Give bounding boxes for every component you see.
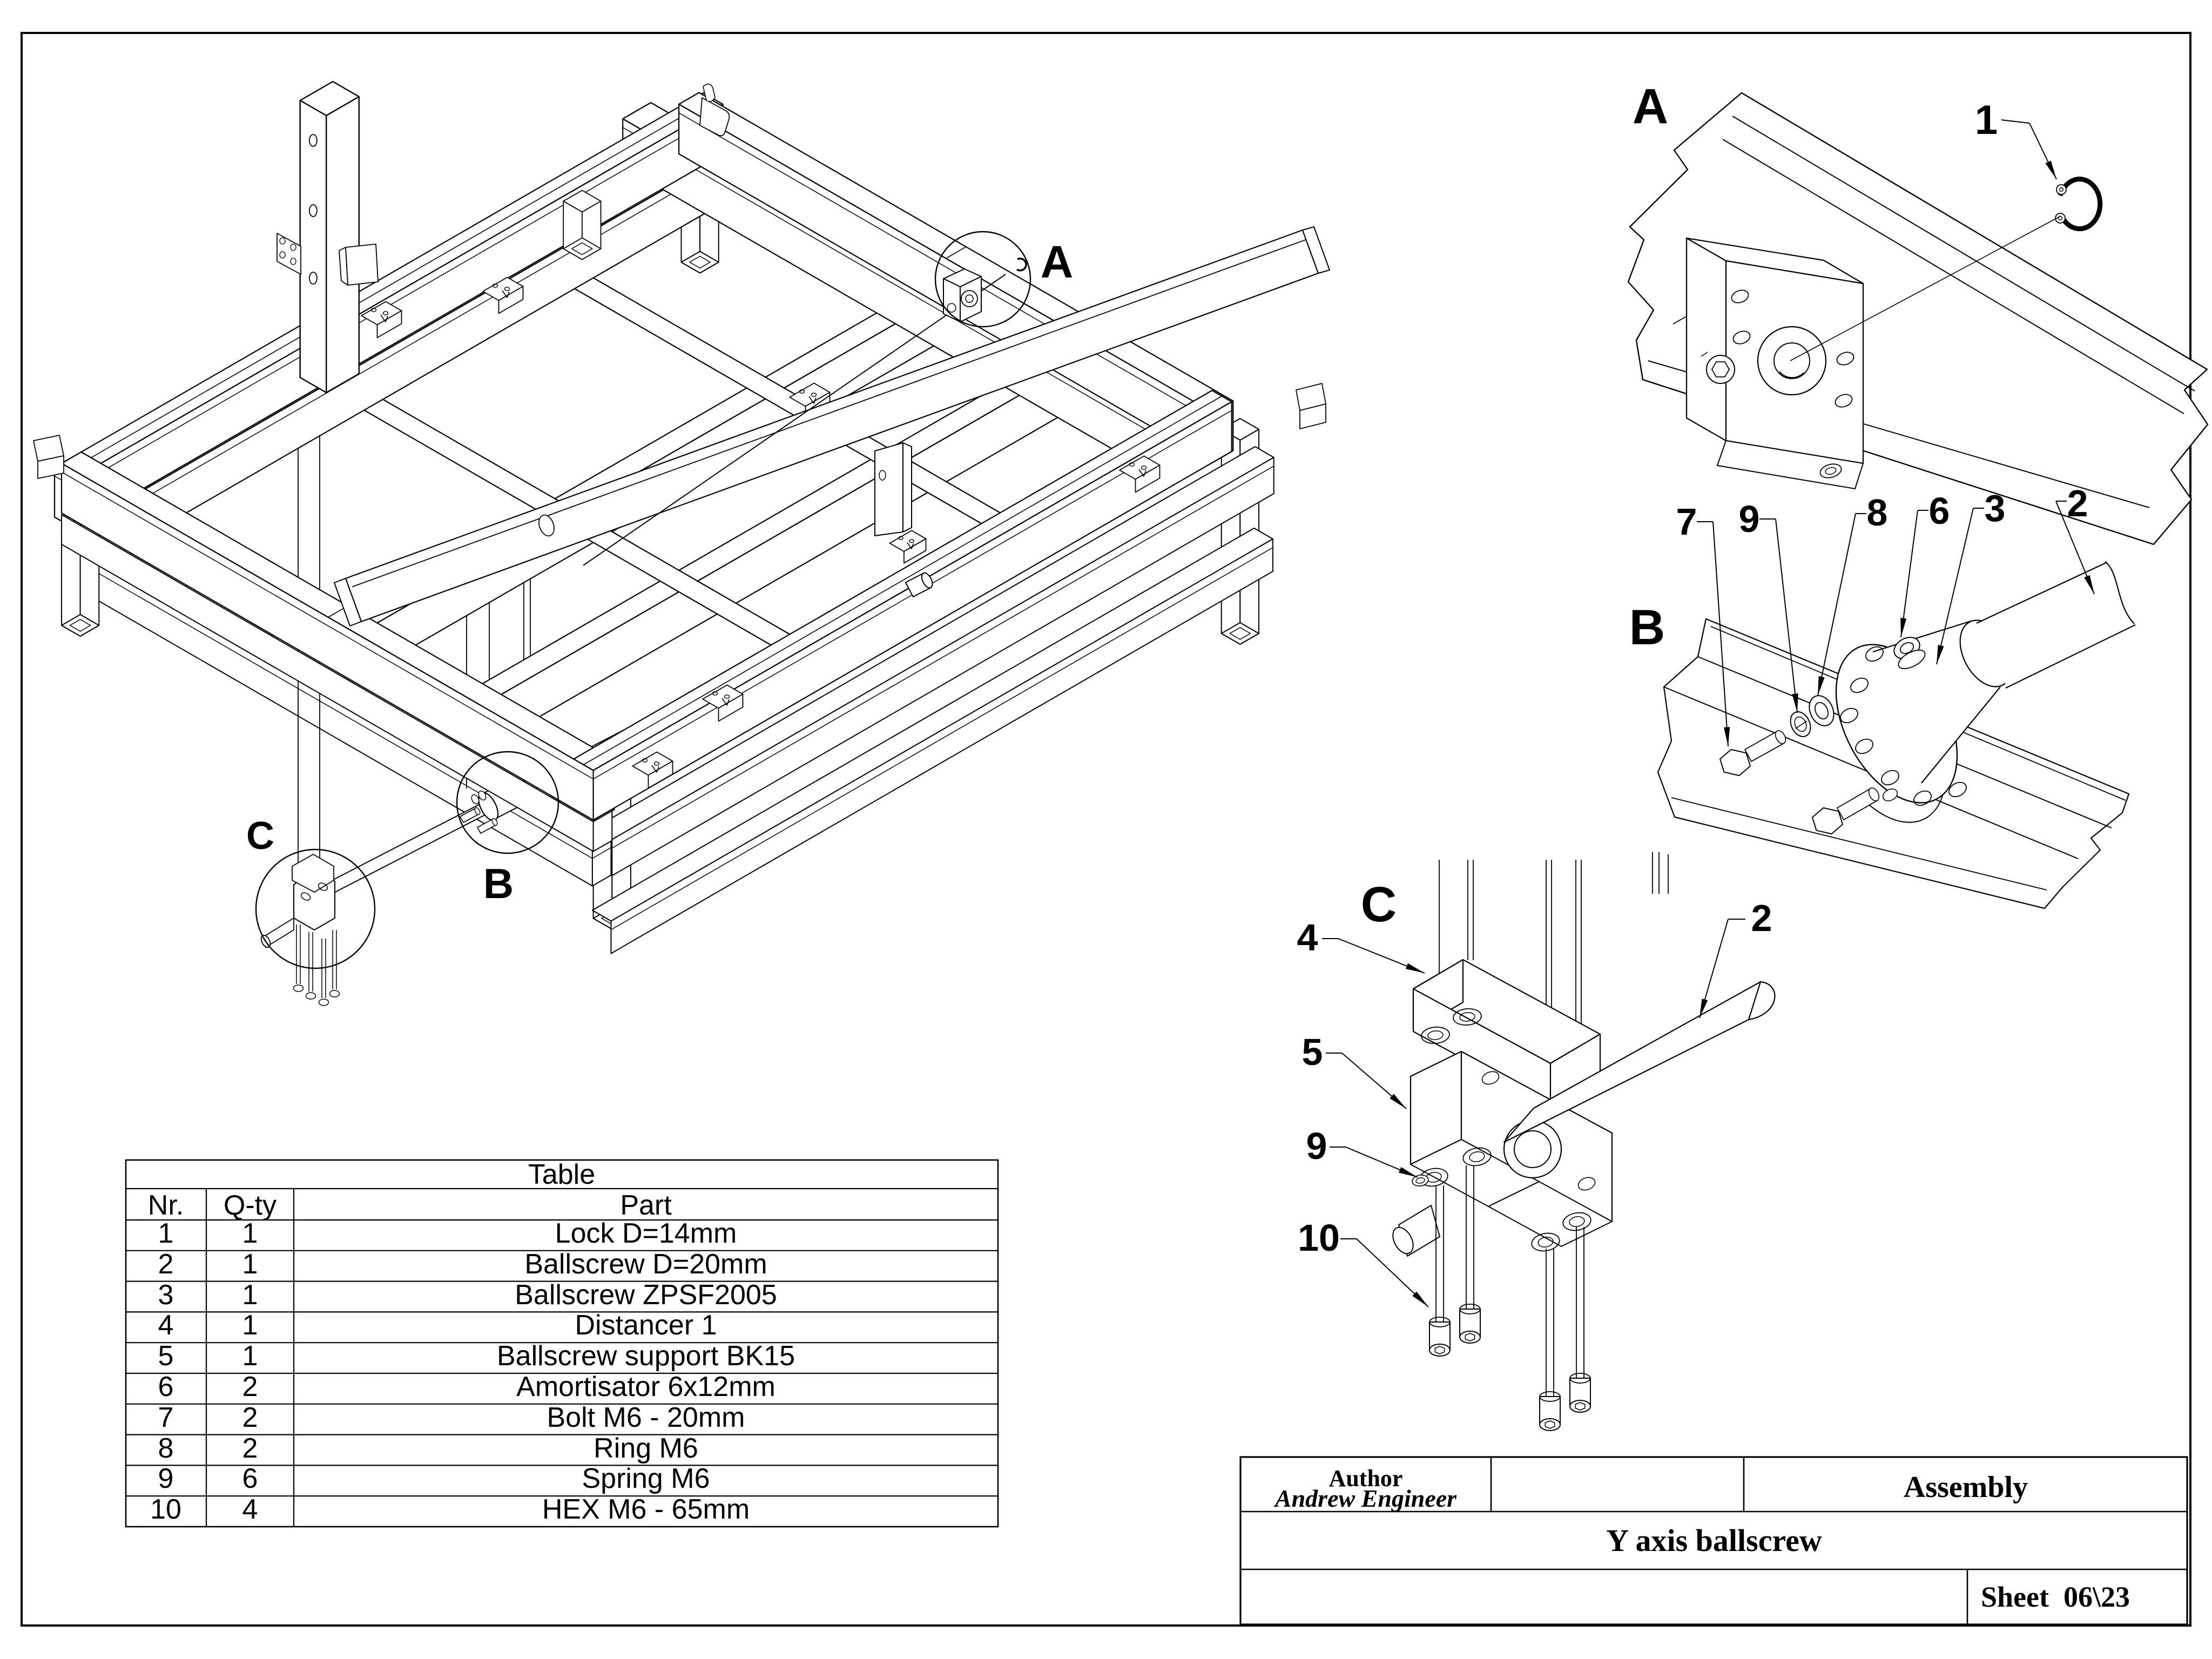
svg-text:8: 8 [158, 1433, 174, 1464]
svg-text:1: 1 [242, 1310, 258, 1341]
svg-text:3: 3 [158, 1279, 174, 1311]
svg-text:Lock D=14mm: Lock D=14mm [555, 1218, 737, 1249]
svg-text:6: 6 [158, 1371, 174, 1402]
svg-text:7: 7 [158, 1402, 174, 1433]
svg-text:1: 1 [242, 1249, 258, 1280]
svg-text:2: 2 [242, 1402, 258, 1433]
svg-text:9: 9 [158, 1463, 174, 1494]
svg-text:1: 1 [242, 1279, 258, 1311]
svg-text:Table: Table [528, 1159, 595, 1190]
svg-text:Part: Part [620, 1190, 672, 1221]
svg-text:5: 5 [158, 1340, 174, 1372]
svg-text:9: 9 [1739, 498, 1760, 540]
svg-text:Spring M6: Spring M6 [582, 1463, 710, 1494]
svg-text:2: 2 [242, 1371, 258, 1402]
svg-text:6: 6 [242, 1463, 258, 1494]
svg-text:Andrew Engineer: Andrew Engineer [1273, 1485, 1457, 1512]
svg-text:Distancer 1: Distancer 1 [575, 1310, 717, 1341]
svg-text:C: C [1361, 877, 1397, 932]
svg-text:4: 4 [1297, 916, 1318, 959]
svg-text:4: 4 [158, 1310, 174, 1341]
svg-text:Q-ty: Q-ty [224, 1190, 276, 1221]
svg-text:C: C [246, 814, 274, 858]
svg-text:7: 7 [1676, 501, 1697, 543]
svg-text:10: 10 [1298, 1217, 1340, 1259]
svg-text:Assembly: Assembly [1904, 1471, 2028, 1504]
svg-text:Sheet 06\23: Sheet 06\23 [1981, 1581, 2130, 1613]
svg-text:Bolt M6 - 20mm: Bolt M6 - 20mm [547, 1402, 745, 1433]
svg-text:HEX M6 - 65mm: HEX M6 - 65mm [542, 1494, 750, 1525]
svg-text:B: B [1629, 600, 1665, 655]
svg-text:B: B [483, 860, 514, 907]
svg-text:1: 1 [242, 1218, 258, 1249]
svg-text:Ballscrew support BK15: Ballscrew support BK15 [497, 1340, 795, 1372]
svg-text:A: A [1041, 237, 1074, 287]
svg-text:8: 8 [1867, 491, 1888, 534]
svg-text:9: 9 [1306, 1125, 1327, 1167]
svg-text:10: 10 [150, 1494, 181, 1525]
svg-text:Nr.: Nr. [148, 1190, 184, 1221]
svg-text:2: 2 [1751, 897, 1772, 939]
svg-text:1: 1 [1975, 97, 1998, 143]
svg-text:1: 1 [242, 1340, 258, 1372]
svg-text:3: 3 [1985, 487, 2006, 529]
svg-text:A: A [1633, 79, 1668, 134]
svg-text:5: 5 [1302, 1031, 1323, 1073]
svg-text:4: 4 [242, 1494, 258, 1525]
svg-text:Ballscrew D=20mm: Ballscrew D=20mm [524, 1249, 767, 1280]
svg-text:2: 2 [158, 1249, 174, 1280]
svg-text:Ballscrew ZPSF2005: Ballscrew ZPSF2005 [515, 1279, 777, 1311]
svg-text:6: 6 [1929, 490, 1950, 532]
svg-text:2: 2 [2067, 482, 2088, 524]
svg-text:2: 2 [242, 1433, 258, 1464]
svg-text:1: 1 [158, 1218, 174, 1249]
svg-text:Amortisator 6x12mm: Amortisator 6x12mm [516, 1371, 775, 1402]
svg-text:Y axis ballscrew: Y axis ballscrew [1606, 1523, 1822, 1558]
svg-text:Ring M6: Ring M6 [594, 1433, 698, 1464]
